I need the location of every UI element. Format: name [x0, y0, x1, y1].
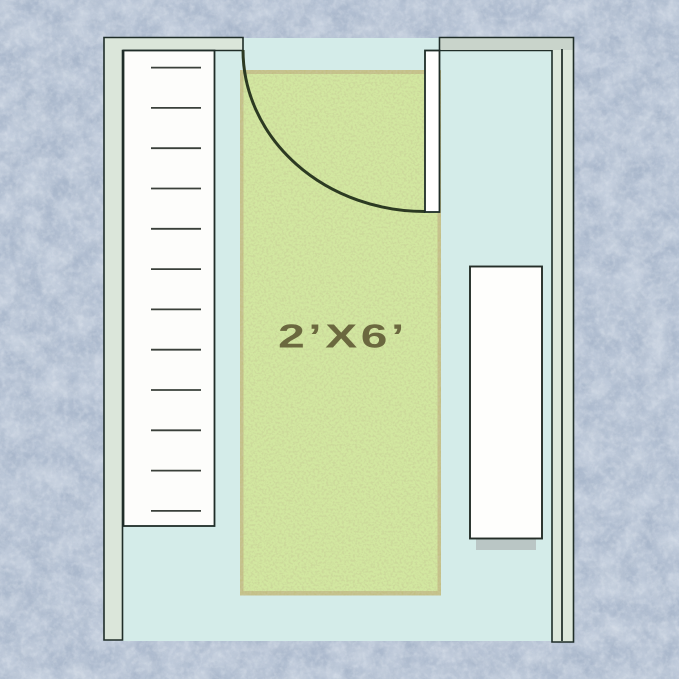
- svg-text:2’X6’: 2’X6’: [278, 318, 408, 355]
